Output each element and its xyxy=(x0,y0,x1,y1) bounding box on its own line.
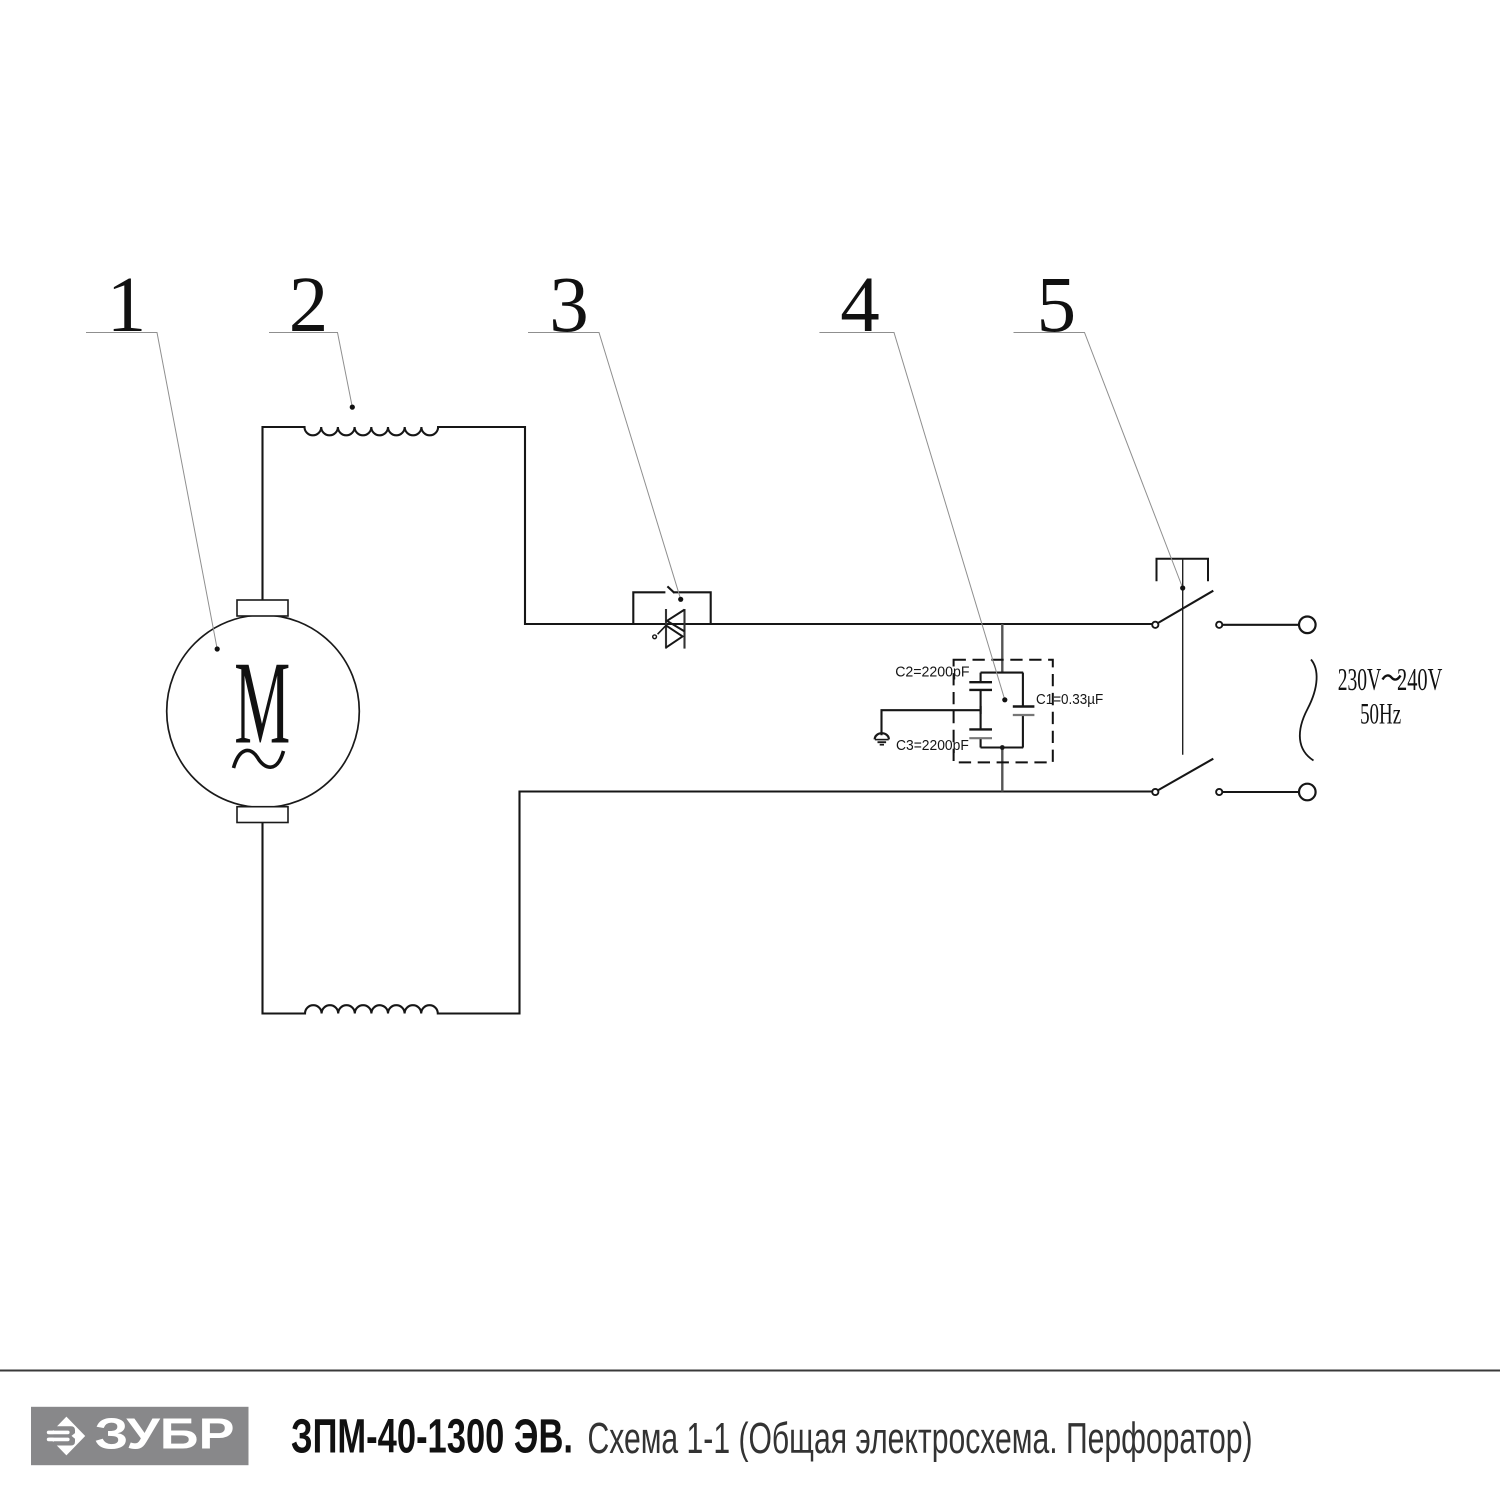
svg-text:C3=2200pF: C3=2200pF xyxy=(896,738,969,754)
svg-text:ЗУБР: ЗУБР xyxy=(95,1410,235,1459)
svg-text:C2=2200pF: C2=2200pF xyxy=(895,665,970,681)
svg-text:ЗПМ-40-1300 ЭВ.: ЗПМ-40-1300 ЭВ. xyxy=(291,1410,573,1464)
svg-text:230V: 230V xyxy=(1338,661,1382,697)
svg-text:Схема 1-1 (Общая электросхема.: Схема 1-1 (Общая электросхема. Перфорато… xyxy=(588,1414,1253,1463)
svg-text:M: M xyxy=(234,637,290,769)
svg-text:1: 1 xyxy=(107,262,147,349)
svg-text:50Hz: 50Hz xyxy=(1360,697,1401,730)
svg-text:3: 3 xyxy=(549,262,589,349)
svg-text:4: 4 xyxy=(840,262,880,349)
svg-text:240V: 240V xyxy=(1397,661,1442,697)
svg-text:2: 2 xyxy=(289,262,329,349)
svg-text:5: 5 xyxy=(1037,262,1077,349)
svg-text:C1=0.33µF: C1=0.33µF xyxy=(1036,692,1103,708)
